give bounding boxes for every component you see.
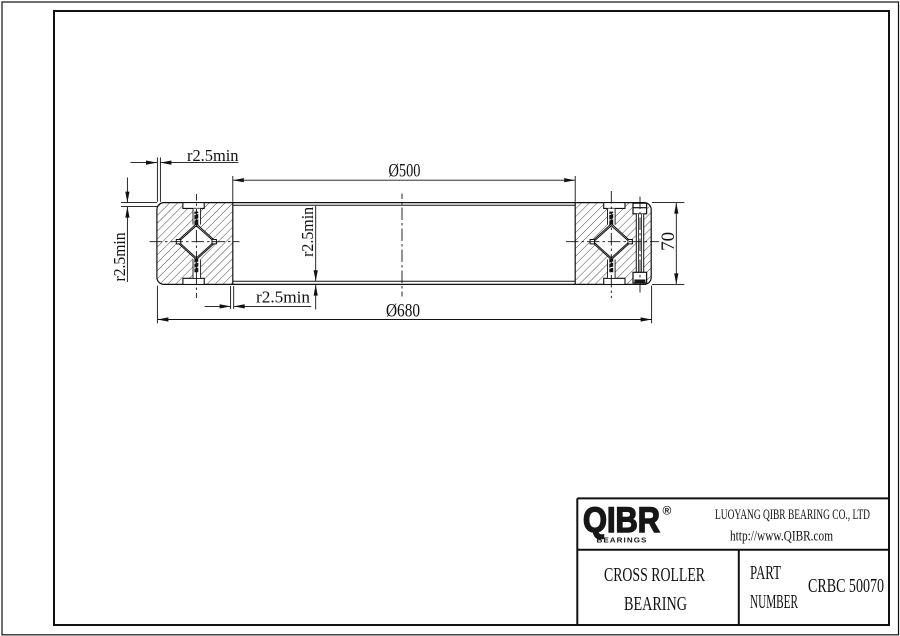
svg-text:BEARINGS: BEARINGS [597,536,648,545]
svg-text:®: ® [663,504,672,518]
svg-text:r2.5min: r2.5min [110,232,129,281]
svg-text:r2.5min: r2.5min [256,288,311,307]
svg-text:QIBR: QIBR [583,501,660,540]
svg-text:r2.5min: r2.5min [298,206,317,256]
svg-text:70: 70 [658,232,679,251]
svg-text:Ø680: Ø680 [386,300,420,321]
svg-text:Ø500: Ø500 [389,160,421,181]
svg-text:LUOYANG QIBR BEARING CO., LTD: LUOYANG QIBR BEARING CO., LTD [715,507,870,523]
svg-text:BEARING: BEARING [624,593,687,615]
svg-text:CROSS ROLLER: CROSS ROLLER [604,564,705,586]
svg-text:r2.5min: r2.5min [187,146,239,165]
svg-text:http://www.QIBR.com: http://www.QIBR.com [730,528,833,544]
svg-text:CRBC 50070: CRBC 50070 [808,575,884,597]
svg-text:NUMBER: NUMBER [750,591,798,613]
svg-text:PART: PART [750,562,781,584]
